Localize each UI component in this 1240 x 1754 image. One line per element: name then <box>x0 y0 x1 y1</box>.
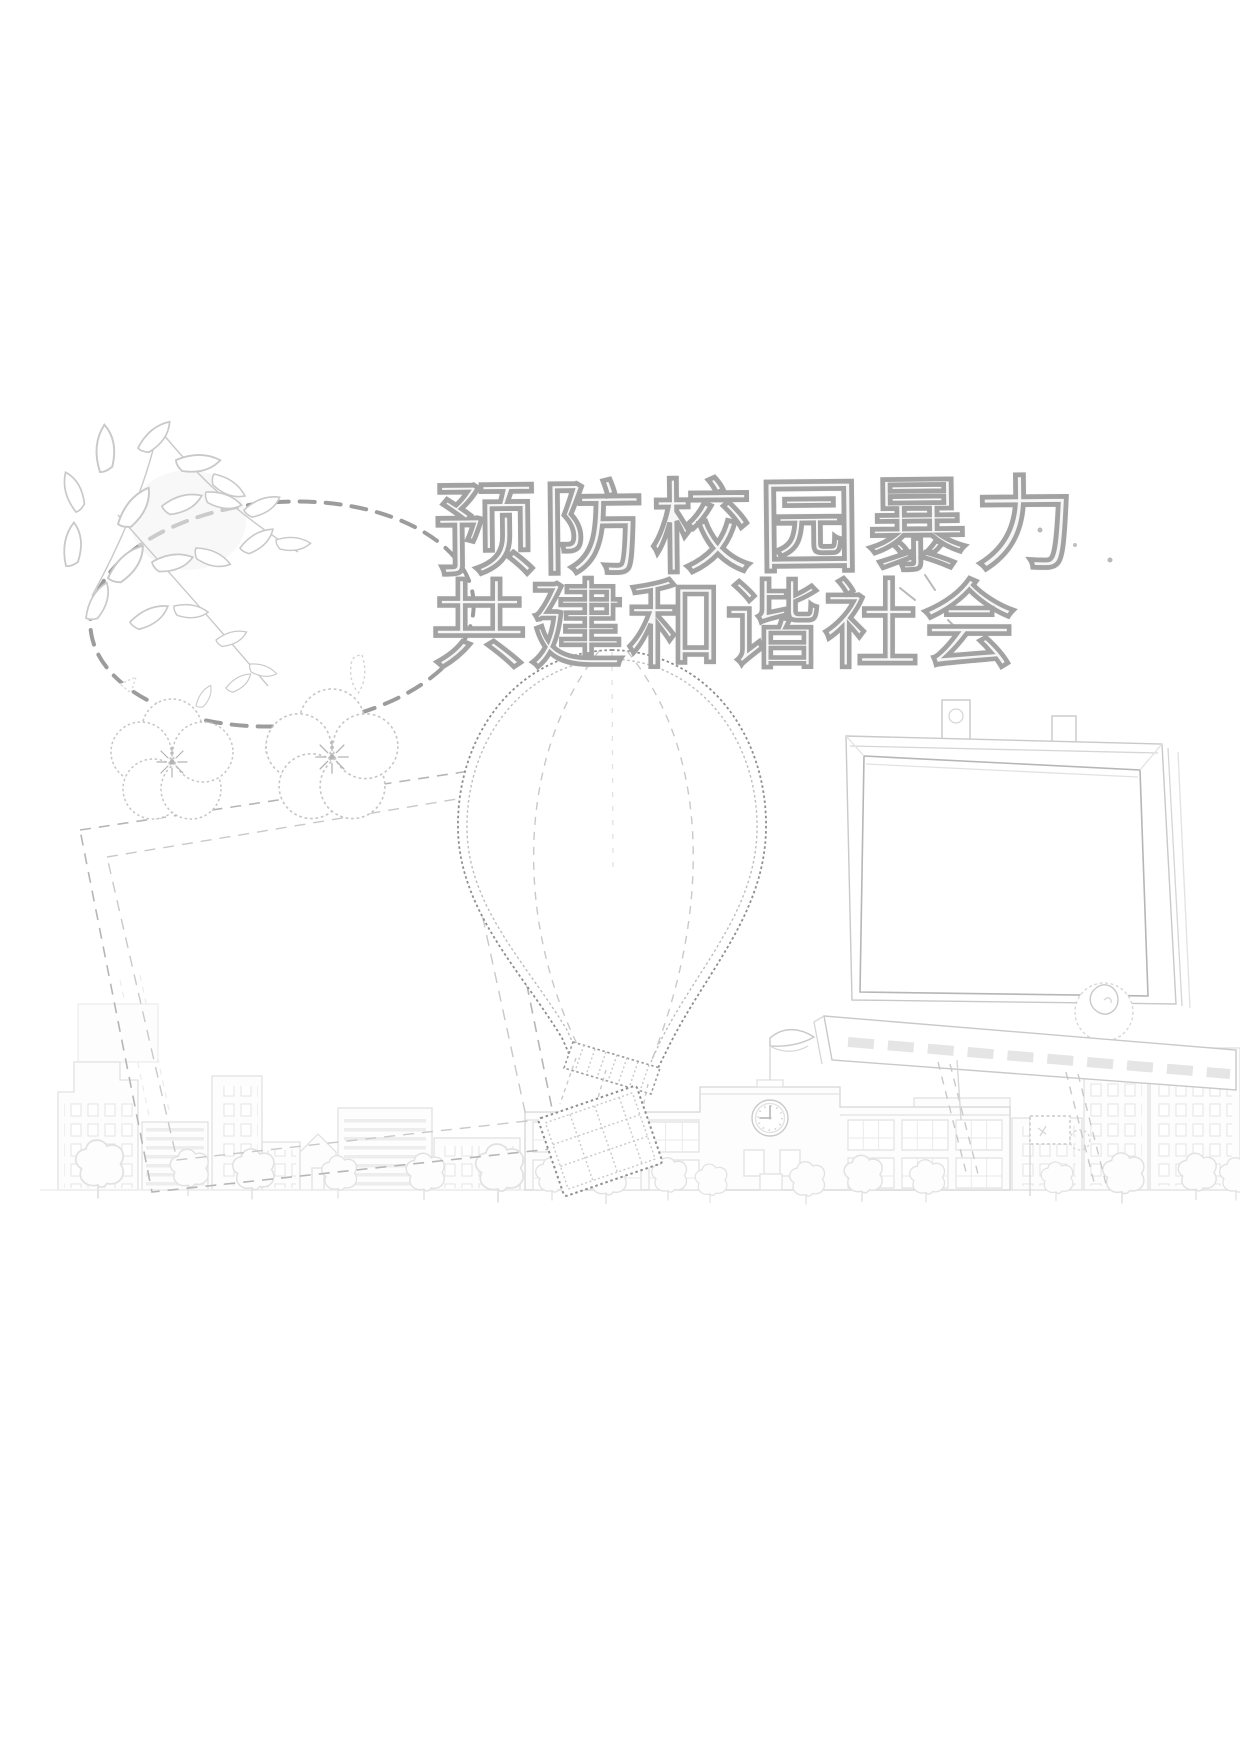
plum-blossom-right <box>266 689 398 819</box>
school-clock <box>752 1100 788 1136</box>
school-flag <box>770 1030 814 1080</box>
title-line-2: 共建和谐社会 <box>430 548 1020 687</box>
board-posts <box>942 700 1076 742</box>
poster-canvas: 预防校园暴力 共建和谐社会 <box>0 0 1240 1754</box>
board-tray <box>814 1016 1236 1090</box>
line-art <box>0 0 1240 1754</box>
circle-doodle <box>1075 983 1133 1041</box>
school-door <box>760 1174 782 1190</box>
plum-blossom-left <box>111 699 233 819</box>
